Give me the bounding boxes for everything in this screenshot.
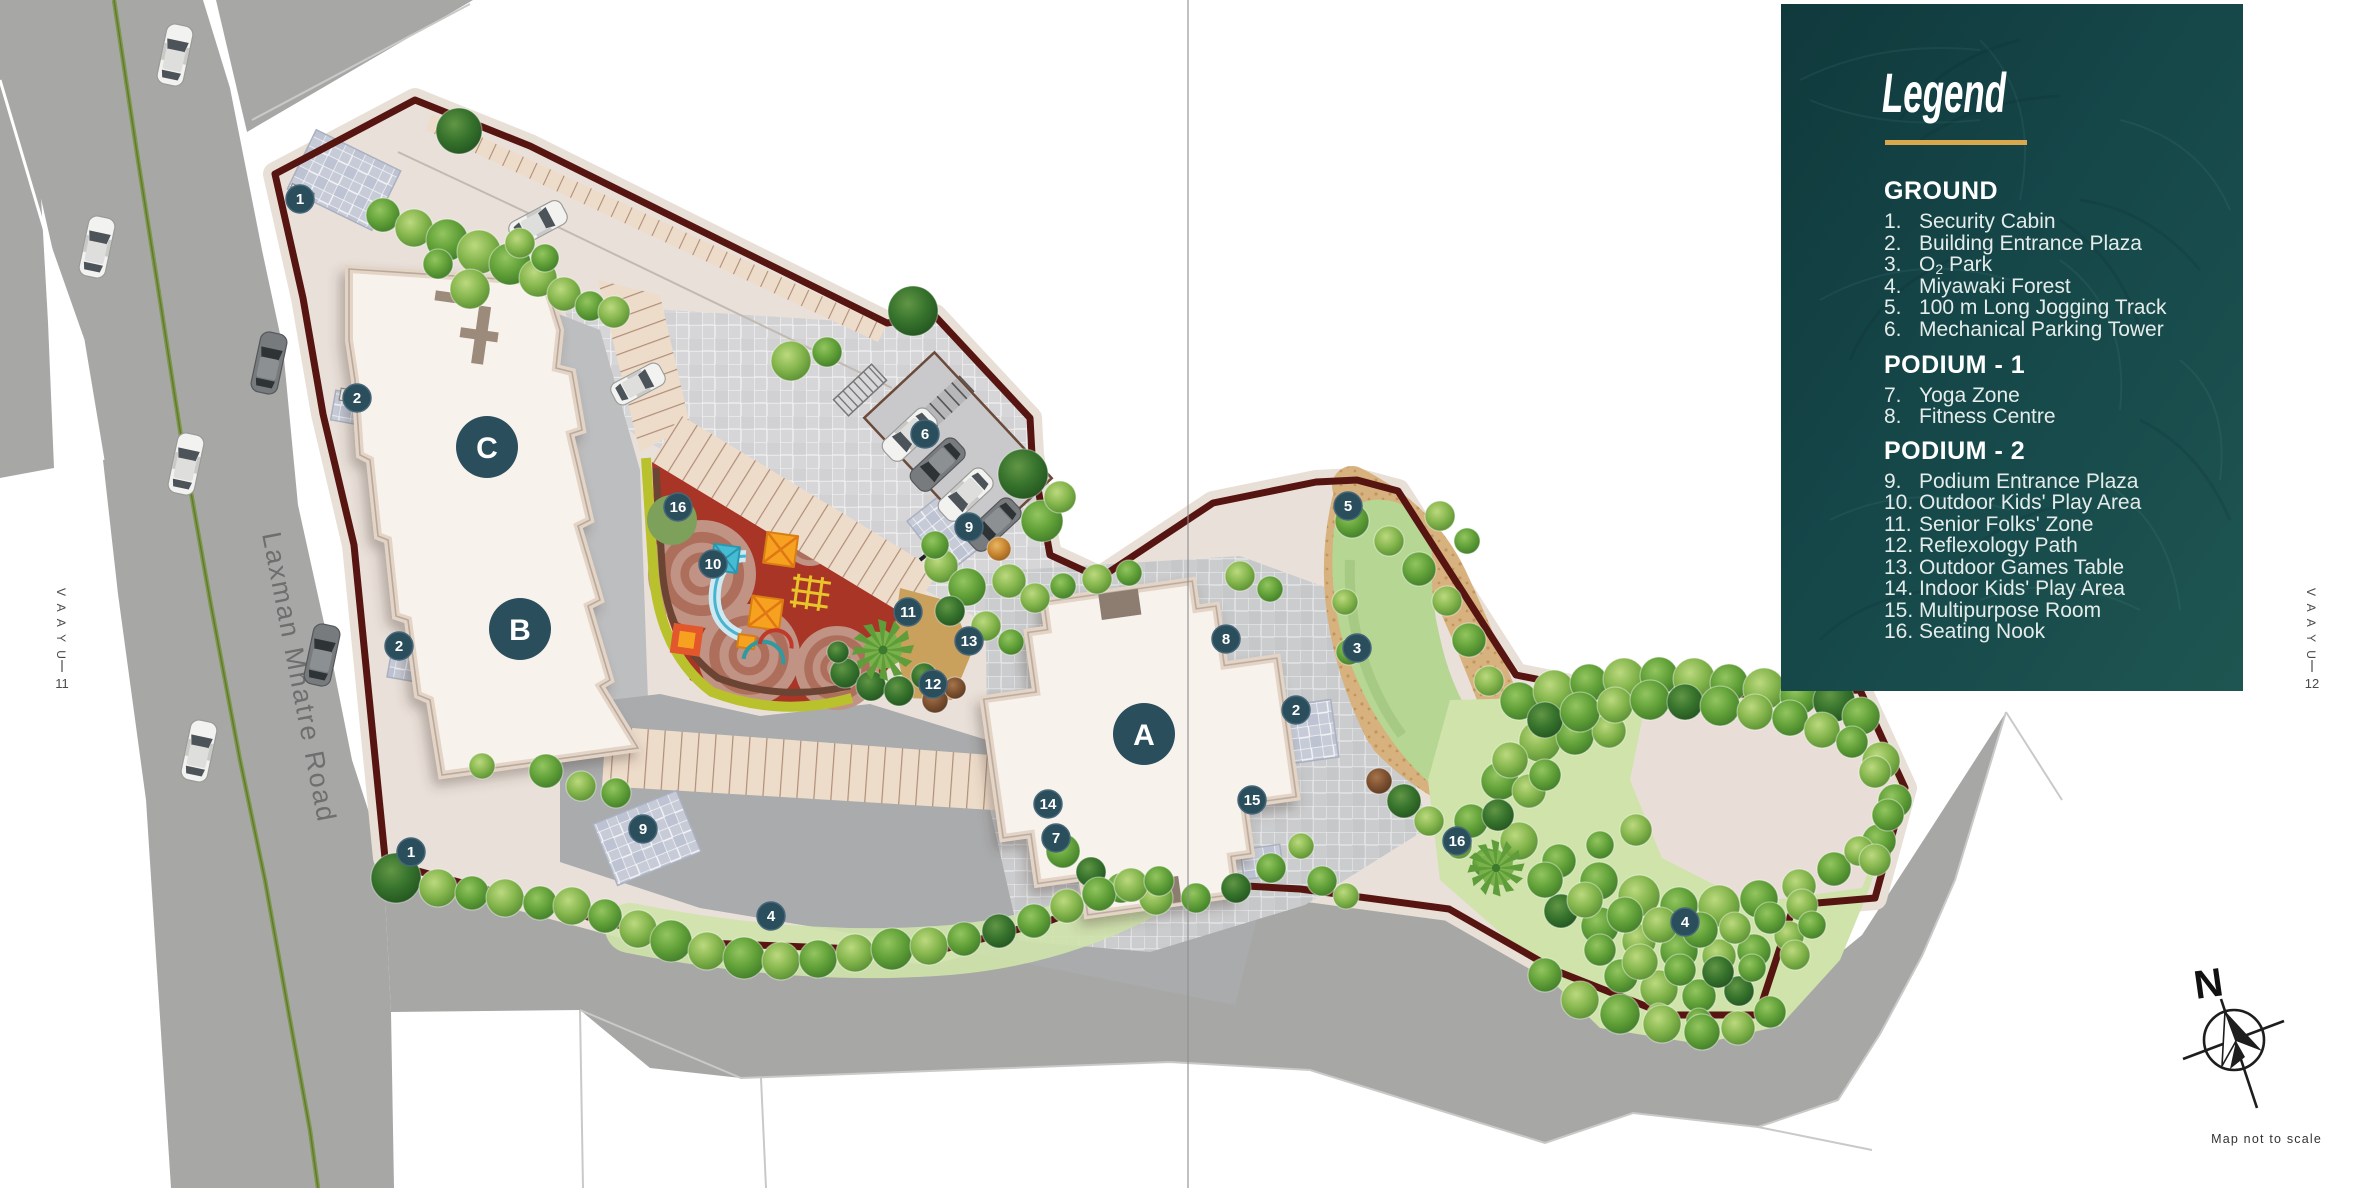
svg-text:9: 9 — [639, 821, 647, 838]
svg-text:100 m Long Jogging Track: 100 m Long Jogging Track — [1919, 296, 2167, 319]
svg-text:4: 4 — [1681, 914, 1690, 931]
svg-text:V A A Y U: V A A Y U — [54, 588, 68, 661]
svg-text:6: 6 — [921, 426, 929, 443]
svg-text:13: 13 — [961, 633, 978, 650]
svg-text:Seating Nook: Seating Nook — [1919, 620, 2046, 643]
svg-text:16: 16 — [1449, 833, 1466, 850]
svg-text:11: 11 — [900, 604, 916, 621]
svg-text:PODIUM - 2: PODIUM - 2 — [1884, 437, 2025, 465]
svg-text:1: 1 — [296, 191, 304, 208]
svg-text:15.: 15. — [1884, 599, 1913, 622]
svg-text:B: B — [509, 614, 531, 647]
svg-text:Building Entrance Plaza: Building Entrance Plaza — [1919, 232, 2142, 255]
svg-text:9.: 9. — [1884, 470, 1902, 493]
svg-text:V A A Y U: V A A Y U — [2304, 588, 2318, 661]
svg-text:15: 15 — [1244, 792, 1261, 809]
svg-text:Indoor Kids' Play Area: Indoor Kids' Play Area — [1919, 577, 2125, 600]
svg-text:GROUND: GROUND — [1884, 177, 1998, 205]
svg-text:Mechanical Parking Tower: Mechanical Parking Tower — [1919, 318, 2164, 341]
svg-text:Multipurpose Room: Multipurpose Room — [1919, 599, 2101, 622]
svg-text:2.: 2. — [1884, 232, 1902, 255]
svg-text:7.: 7. — [1884, 384, 1902, 407]
svg-text:10: 10 — [705, 556, 722, 573]
svg-text:14.: 14. — [1884, 577, 1913, 600]
svg-text:14: 14 — [1040, 796, 1057, 813]
svg-text:1: 1 — [407, 844, 415, 861]
svg-text:PODIUM - 1: PODIUM - 1 — [1884, 351, 2025, 379]
svg-text:N: N — [2191, 960, 2226, 1008]
svg-text:12: 12 — [925, 676, 942, 693]
svg-text:Miyawaki Forest: Miyawaki Forest — [1919, 275, 2071, 298]
svg-text:Map not to scale: Map not to scale — [2211, 1132, 2322, 1146]
svg-text:Yoga Zone: Yoga Zone — [1919, 384, 2020, 407]
svg-text:8: 8 — [1222, 631, 1230, 648]
svg-text:Security Cabin: Security Cabin — [1919, 210, 2056, 233]
svg-text:12: 12 — [2305, 676, 2319, 691]
svg-text:13.: 13. — [1884, 556, 1913, 579]
svg-text:3.: 3. — [1884, 253, 1902, 276]
svg-text:Senior Folks' Zone: Senior Folks' Zone — [1919, 513, 2093, 536]
svg-text:Podium Entrance Plaza: Podium Entrance Plaza — [1919, 470, 2139, 493]
svg-text:11: 11 — [55, 676, 69, 691]
svg-text:8.: 8. — [1884, 405, 1902, 428]
svg-text:2: 2 — [395, 638, 403, 655]
svg-text:C: C — [476, 432, 498, 465]
svg-text:6.: 6. — [1884, 318, 1902, 341]
svg-text:Outdoor Games Table: Outdoor Games Table — [1919, 556, 2124, 579]
svg-text:Reflexology Path: Reflexology Path — [1919, 534, 2078, 557]
svg-text:4: 4 — [767, 908, 776, 925]
svg-text:2: 2 — [1292, 702, 1300, 719]
svg-text:10.: 10. — [1884, 491, 1913, 514]
svg-text:9: 9 — [965, 519, 973, 536]
svg-text:16.: 16. — [1884, 620, 1913, 643]
svg-text:7: 7 — [1052, 830, 1060, 847]
svg-text:12.: 12. — [1884, 534, 1913, 557]
svg-text:16: 16 — [670, 499, 687, 516]
svg-text:2: 2 — [353, 390, 361, 407]
svg-text:5: 5 — [1344, 498, 1352, 515]
svg-text:4.: 4. — [1884, 275, 1902, 298]
svg-text:A: A — [1133, 719, 1155, 752]
svg-text:Legend: Legend — [1882, 61, 2007, 124]
svg-text:Fitness Centre: Fitness Centre — [1919, 405, 2056, 428]
svg-text:5.: 5. — [1884, 296, 1902, 319]
svg-text:11.: 11. — [1884, 513, 1912, 536]
svg-text:1.: 1. — [1884, 210, 1902, 233]
svg-text:O2 Park: O2 Park — [1919, 253, 1993, 277]
svg-text:3: 3 — [1353, 640, 1361, 657]
svg-text:Outdoor Kids' Play Area: Outdoor Kids' Play Area — [1919, 491, 2142, 514]
